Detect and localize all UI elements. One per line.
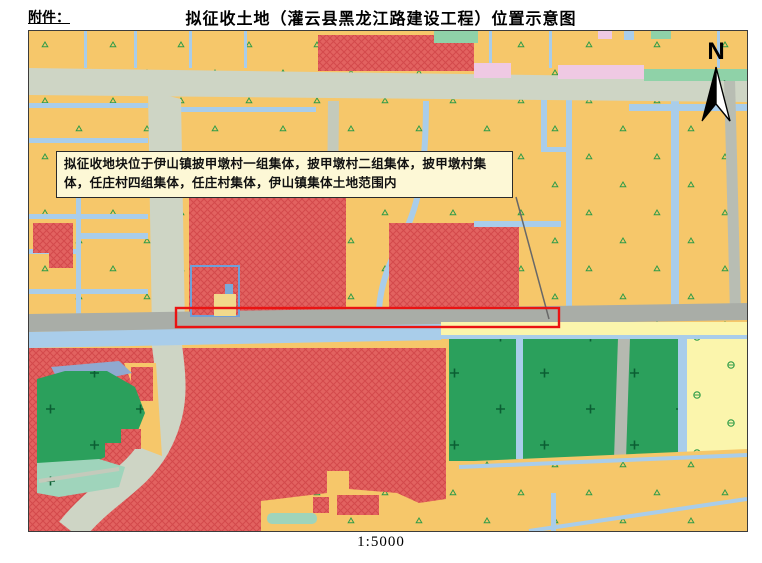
page: { "header": { "attachment_label": "附件：",… <box>0 0 762 563</box>
north-label: N <box>707 38 724 65</box>
annotation-box: 拟征收地块位于伊山镇披甲墩村一组集体，披甲墩村二组集体，披甲墩村集体，任庄村四组… <box>56 151 513 198</box>
scale-label: 1:5000 <box>0 534 762 551</box>
map-frame: N 拟征收地块位于伊山镇披甲墩村一组集体，披甲墩村二组集体，披甲墩村集体，任庄村… <box>28 30 748 532</box>
page-title: 拟征收土地（灌云县黑龙江路建设工程）位置示意图 <box>0 5 762 29</box>
road-vertical-left <box>148 91 185 333</box>
green-parcels-southeast <box>449 334 747 461</box>
map-canvas: N <box>29 31 747 531</box>
building <box>214 294 236 316</box>
